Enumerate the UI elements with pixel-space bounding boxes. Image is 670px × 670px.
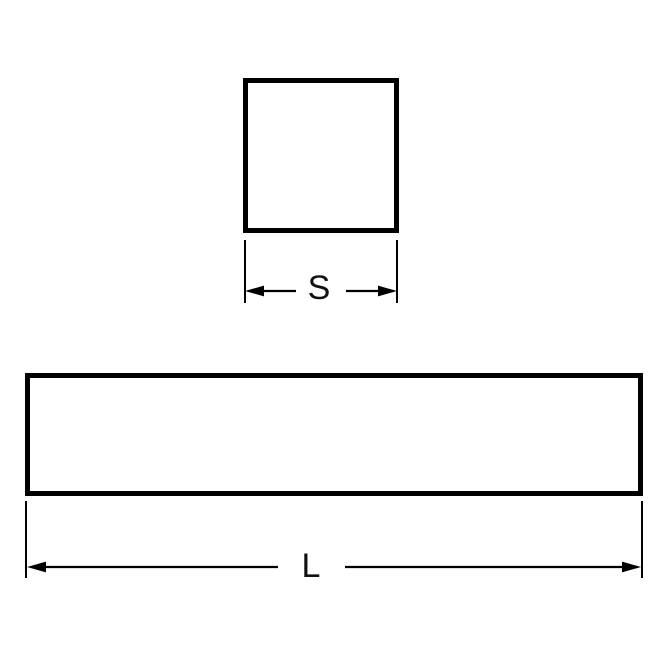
bar-length-view: L: [26, 376, 642, 586]
square-outline: [246, 81, 397, 231]
square-size-dimension-label: S: [308, 269, 331, 307]
s-arrow-left-icon: [245, 286, 264, 297]
l-arrow-right-icon: [622, 562, 641, 573]
l-arrow-left-icon: [27, 562, 46, 573]
keystock-dimension-drawing: S L: [0, 0, 670, 670]
bar-length-dimension-label: L: [302, 547, 321, 585]
bar-outline: [28, 376, 641, 494]
s-arrow-right-icon: [378, 286, 397, 297]
square-cross-section-view: S: [245, 81, 397, 308]
technical-drawing-page: S L: [0, 0, 670, 670]
